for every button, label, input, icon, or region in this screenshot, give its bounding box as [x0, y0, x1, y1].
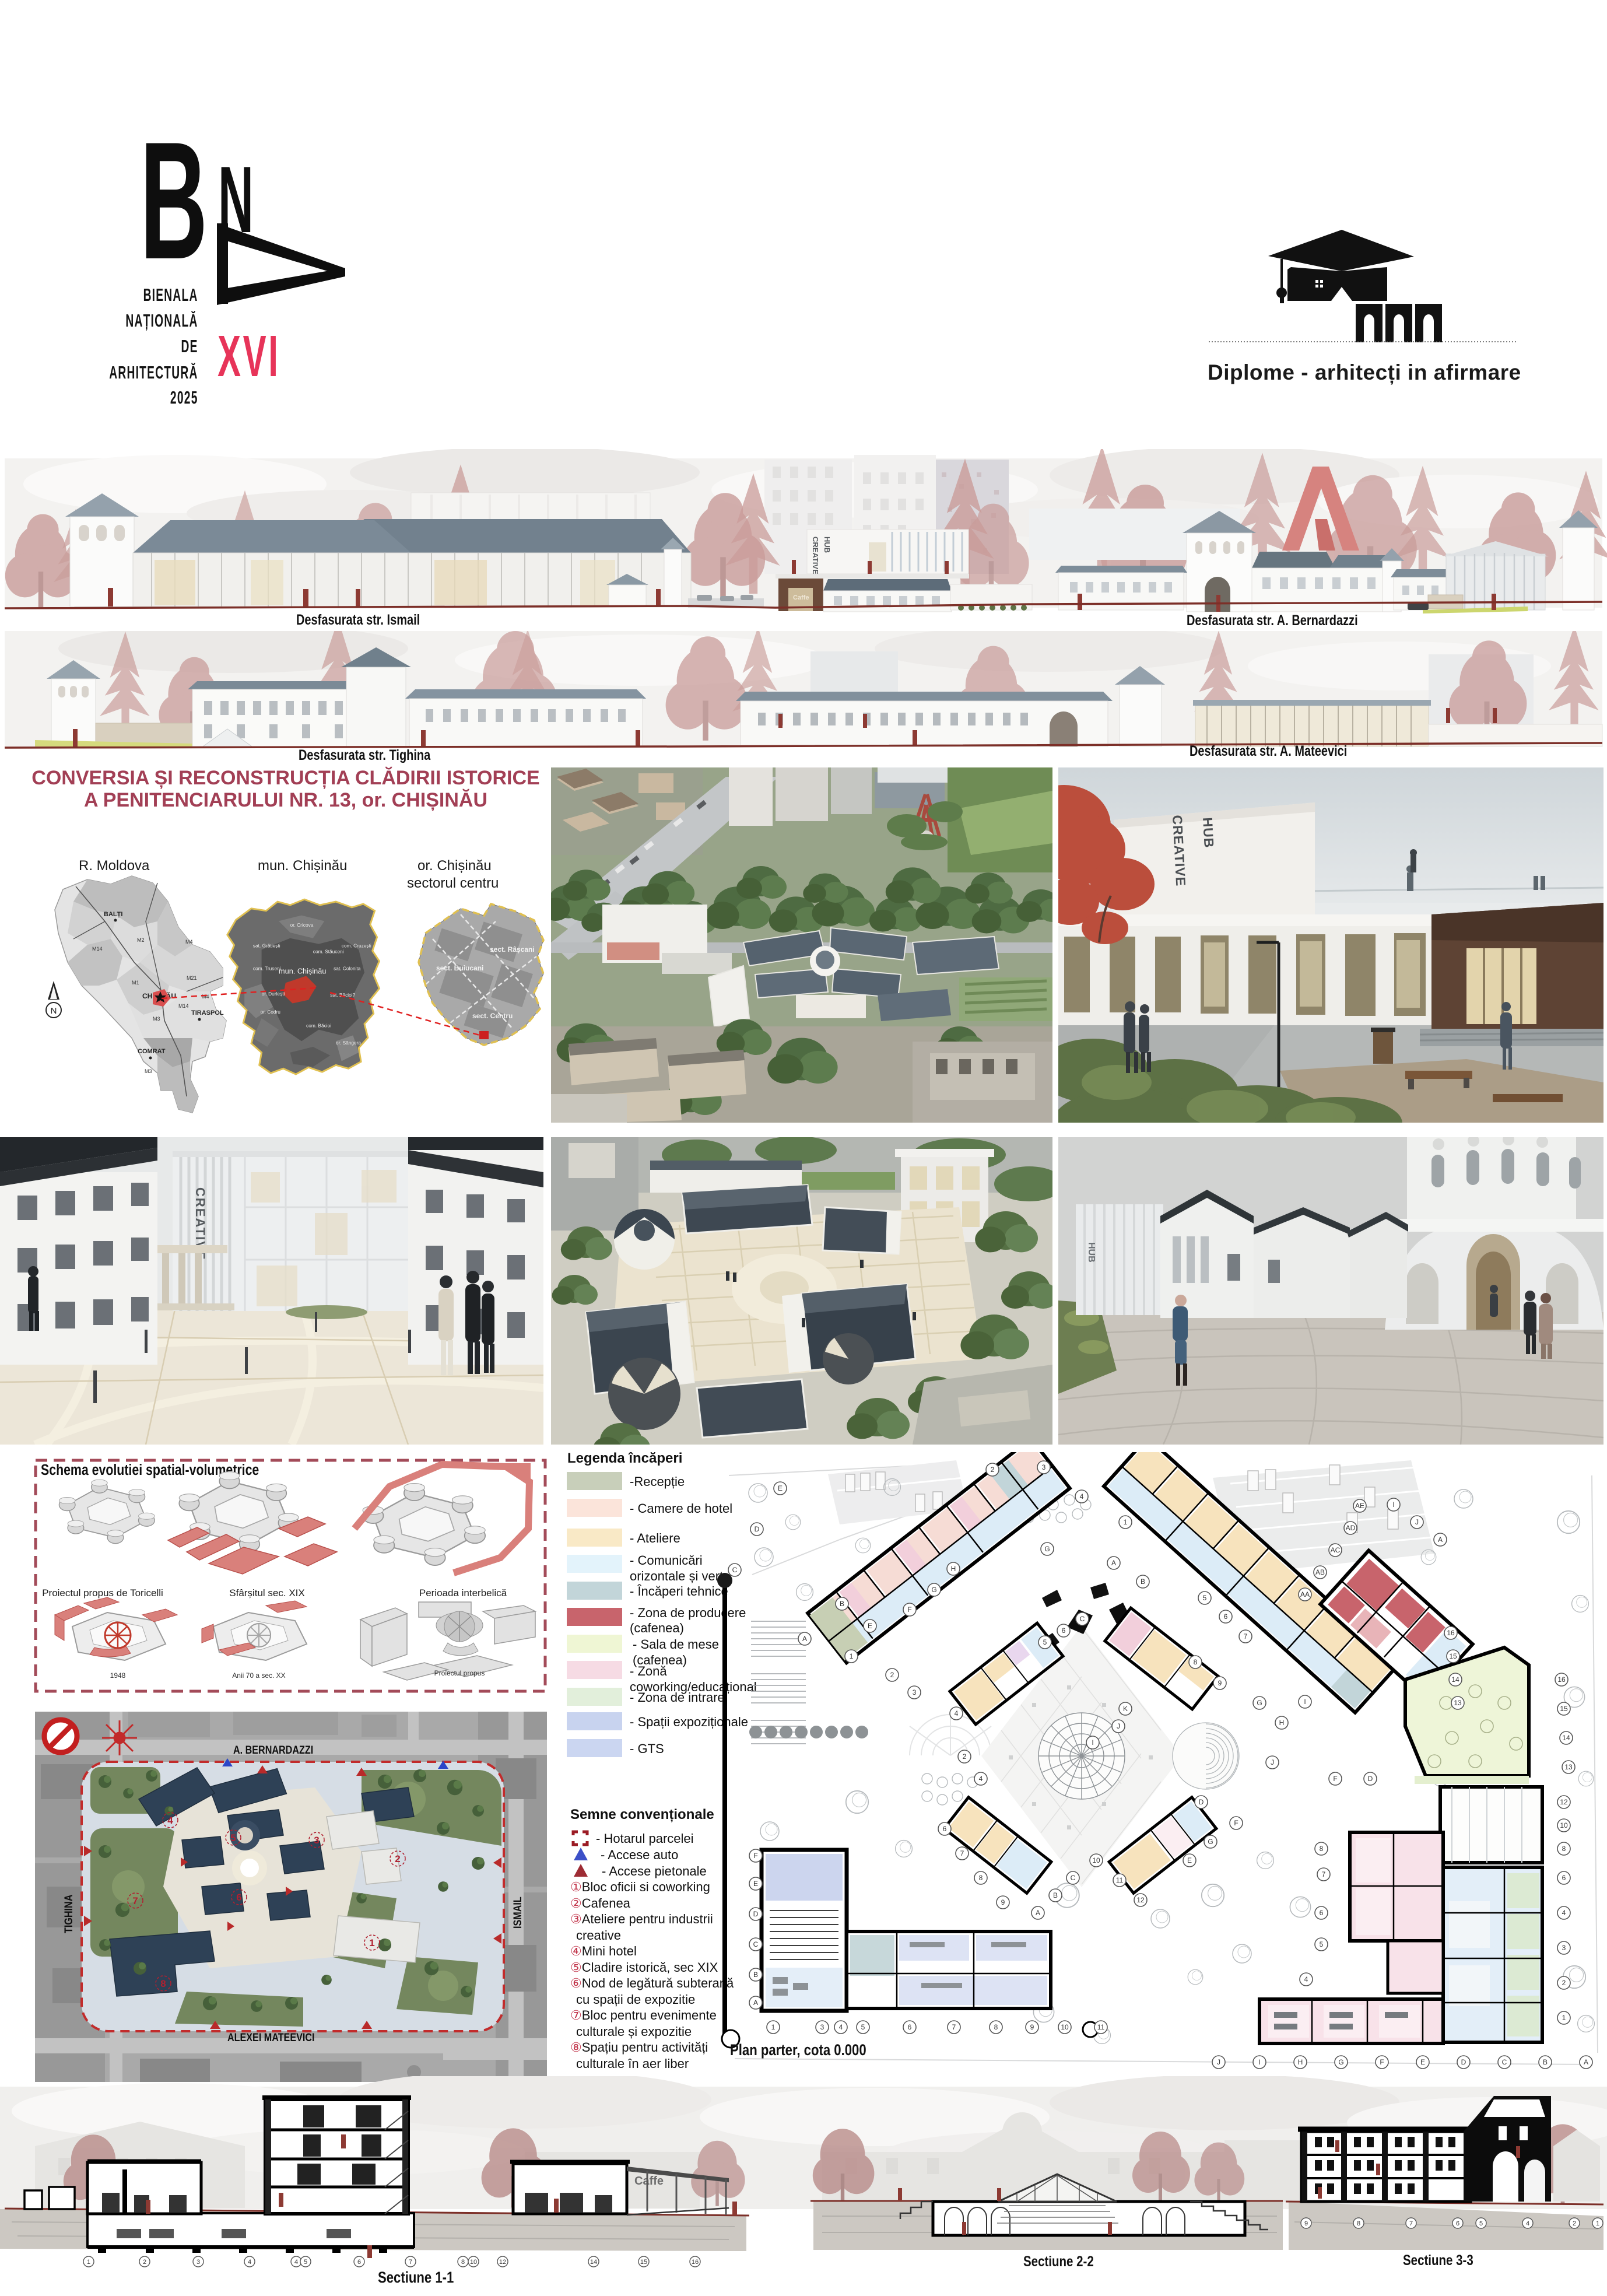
svg-text:H: H — [1298, 2058, 1303, 2066]
svg-text:Sfârșitul sec. XIX: Sfârșitul sec. XIX — [229, 1587, 304, 1599]
svg-text:D: D — [755, 1525, 760, 1533]
svg-text:1: 1 — [87, 2259, 90, 2266]
svg-text:TIRASPOL: TIRASPOL — [191, 1009, 224, 1016]
svg-text:com. Stăuceni: com. Stăuceni — [313, 948, 344, 954]
svg-text:Plan parter, cota 0.000: Plan parter, cota 0.000 — [730, 2042, 866, 2059]
svg-text:4: 4 — [955, 1709, 959, 1717]
svg-text:M3: M3 — [153, 1016, 160, 1022]
svg-text:6: 6 — [236, 1892, 241, 1903]
svg-text:ISMAIL: ISMAIL — [511, 1897, 524, 1929]
svg-text:E: E — [1420, 2058, 1425, 2066]
svg-text:9: 9 — [1030, 2023, 1034, 2031]
svg-text:3: 3 — [314, 1835, 319, 1846]
svg-text:6: 6 — [1224, 1613, 1228, 1621]
svg-text:A: A — [802, 1635, 807, 1643]
svg-text:Desfasurata str. A. Mateevici: Desfasurata str. A. Mateevici — [1190, 743, 1347, 759]
svg-text:4: 4 — [1080, 1492, 1084, 1501]
svg-text:3: 3 — [820, 2023, 824, 2031]
svg-text:J: J — [1117, 1722, 1120, 1730]
svg-text:J: J — [1271, 1758, 1274, 1766]
svg-text:7: 7 — [132, 1895, 138, 1906]
svg-text:15: 15 — [1449, 1652, 1457, 1660]
svg-text:3: 3 — [197, 2259, 200, 2266]
svg-text:sect. Centru: sect. Centru — [472, 1012, 513, 1020]
svg-text:I: I — [1304, 1698, 1306, 1706]
svg-text:D: D — [1461, 2058, 1466, 2066]
svg-text:AC: AC — [1331, 1546, 1341, 1554]
svg-text:1: 1 — [1124, 1518, 1128, 1526]
svg-text:Perioada interbelică: Perioada interbelică — [419, 1587, 507, 1599]
svg-text:sat. Colonita: sat. Colonita — [334, 966, 361, 972]
svg-text:4: 4 — [839, 2023, 843, 2031]
svg-text:BIENALA: BIENALA — [143, 286, 198, 306]
svg-text:11: 11 — [1097, 2023, 1105, 2031]
svg-text:C: C — [1080, 1615, 1085, 1623]
svg-text:5: 5 — [1203, 1594, 1207, 1602]
svg-text:COMRAT: COMRAT — [138, 1048, 166, 1055]
svg-text:D: D — [753, 1910, 759, 1918]
svg-text:M3: M3 — [145, 1068, 152, 1074]
svg-text:C: C — [753, 1940, 759, 1948]
svg-text:NAȚIONALĂ: NAȚIONALĂ — [125, 310, 198, 331]
svg-text:Desfasurata str. A. Bernardazz: Desfasurata str. A. Bernardazzi — [1187, 612, 1358, 629]
svg-text:B: B — [1053, 1891, 1058, 1899]
svg-text:F: F — [753, 1852, 757, 1860]
svg-text:F: F — [1234, 1819, 1238, 1827]
svg-text:HUB: HUB — [1086, 1242, 1096, 1263]
svg-text:com. Truseni: com. Truseni — [253, 966, 281, 972]
svg-text:C: C — [1502, 2058, 1507, 2066]
svg-text:14: 14 — [1451, 1675, 1459, 1684]
svg-text:M4: M4 — [185, 939, 193, 945]
svg-text:6: 6 — [1062, 1627, 1066, 1635]
svg-text:Caffe: Caffe — [793, 594, 809, 601]
svg-text:7: 7 — [1244, 1632, 1248, 1640]
svg-text:ARHITECTURĂ: ARHITECTURĂ — [109, 362, 198, 383]
svg-text:4: 4 — [294, 2259, 298, 2266]
svg-text:3: 3 — [1042, 1463, 1046, 1471]
svg-text:K: K — [1123, 1705, 1128, 1713]
svg-text:8: 8 — [160, 1978, 166, 1989]
svg-text:14: 14 — [590, 2259, 597, 2266]
svg-text:2: 2 — [963, 1752, 967, 1761]
svg-text:D: D — [1368, 1775, 1373, 1783]
svg-text:C: C — [732, 1566, 738, 1574]
svg-text:HUB: HUB — [1200, 817, 1217, 849]
svg-text:XVI: XVI — [217, 324, 280, 389]
svg-text:4: 4 — [167, 1815, 173, 1826]
svg-text:7: 7 — [1322, 1870, 1326, 1878]
svg-text:4: 4 — [248, 2259, 251, 2266]
svg-text:3: 3 — [1562, 1944, 1566, 1952]
svg-text:Desfasurata str. Tighina: Desfasurata str. Tighina — [299, 747, 431, 763]
svg-text:9: 9 — [1304, 2220, 1308, 2227]
svg-text:I: I — [1258, 2058, 1260, 2066]
svg-text:1948: 1948 — [110, 1671, 126, 1680]
svg-text:2: 2 — [143, 2259, 146, 2266]
svg-text:14: 14 — [1562, 1734, 1570, 1742]
svg-text:Proiectul propus: Proiectul propus — [434, 1669, 485, 1677]
svg-text:N: N — [51, 1006, 57, 1016]
svg-text:1: 1 — [1596, 2220, 1599, 2227]
svg-text:sect. Râșcani: sect. Râșcani — [490, 945, 535, 954]
svg-text:16: 16 — [692, 2259, 699, 2266]
svg-text:2: 2 — [1562, 1979, 1566, 1987]
svg-text:5: 5 — [230, 1832, 236, 1843]
svg-text:7: 7 — [960, 1849, 964, 1857]
svg-text:H: H — [1279, 1719, 1285, 1727]
svg-text:BALȚI: BALȚI — [104, 911, 122, 918]
svg-text:4: 4 — [1562, 1909, 1566, 1917]
svg-text:B: B — [1141, 1578, 1145, 1586]
svg-text:mun. Chișinău: mun. Chișinău — [258, 858, 347, 874]
svg-text:A: A — [1111, 1559, 1116, 1567]
svg-text:com. Cruzești: com. Cruzești — [342, 942, 371, 948]
svg-text:2025: 2025 — [170, 388, 198, 408]
svg-text:12: 12 — [1560, 1798, 1568, 1806]
svg-text:4: 4 — [1526, 2220, 1529, 2227]
svg-text:8: 8 — [1320, 1845, 1324, 1853]
svg-text:or. Cricova: or. Cricova — [290, 922, 314, 928]
svg-text:1: 1 — [771, 2023, 776, 2031]
svg-text:1: 1 — [1562, 2014, 1566, 2022]
svg-text:12: 12 — [499, 2259, 506, 2266]
svg-text:M2: M2 — [137, 937, 145, 943]
svg-text:13: 13 — [1454, 1699, 1462, 1707]
svg-text:1: 1 — [850, 1652, 854, 1660]
svg-text:9: 9 — [1001, 1898, 1005, 1906]
svg-text:C: C — [1071, 1874, 1076, 1882]
svg-text:I: I — [1392, 1501, 1394, 1509]
svg-text:5: 5 — [304, 2259, 307, 2266]
svg-text:A. BERNARDAZZI: A. BERNARDAZZI — [233, 1744, 313, 1757]
svg-text:5: 5 — [1043, 1638, 1047, 1646]
svg-text:AE: AE — [1355, 1502, 1364, 1510]
svg-text:E: E — [778, 1484, 783, 1492]
svg-text:F: F — [907, 1606, 911, 1614]
svg-text:HUB: HUB — [823, 537, 831, 553]
svg-text:TIGHINA: TIGHINA — [62, 1894, 75, 1933]
svg-text:5: 5 — [861, 2023, 865, 2031]
svg-text:H: H — [951, 1565, 956, 1573]
svg-text:Caffe: Caffe — [634, 2175, 664, 2188]
svg-text:6: 6 — [1456, 2220, 1459, 2227]
svg-text:7: 7 — [1409, 2220, 1413, 2227]
svg-text:2: 2 — [1573, 2220, 1576, 2227]
svg-text:8: 8 — [461, 2259, 465, 2266]
svg-text:sectorul centru: sectorul centru — [407, 875, 499, 891]
svg-text:A: A — [1438, 1536, 1443, 1544]
svg-text:G: G — [1044, 1545, 1050, 1553]
svg-text:AA: AA — [1300, 1590, 1310, 1599]
svg-text:1: 1 — [369, 1937, 374, 1948]
svg-text:12: 12 — [1136, 1896, 1145, 1904]
svg-text:ALEXEI MATEEVICI: ALEXEI MATEEVICI — [227, 2031, 314, 2044]
svg-text:Anii 70 a sec. XX: Anii 70 a sec. XX — [232, 1671, 285, 1680]
svg-text:G: G — [1257, 1699, 1262, 1707]
svg-text:6: 6 — [1562, 1874, 1566, 1882]
svg-text:or. Săngera: or. Săngera — [336, 1040, 361, 1046]
svg-text:8: 8 — [979, 1874, 983, 1882]
svg-text:J: J — [1217, 2058, 1220, 2066]
svg-text:6: 6 — [943, 1825, 947, 1833]
svg-text:8: 8 — [1194, 1658, 1198, 1666]
svg-text:J: J — [1415, 1518, 1419, 1526]
svg-text:2: 2 — [395, 1853, 400, 1864]
svg-text:8: 8 — [994, 2023, 998, 2031]
svg-text:6: 6 — [357, 2259, 361, 2266]
svg-text:E: E — [868, 1622, 872, 1630]
svg-text:DE: DE — [181, 337, 198, 357]
svg-text:8: 8 — [1562, 1845, 1566, 1853]
svg-text:G: G — [931, 1586, 936, 1594]
svg-text:10: 10 — [1560, 1821, 1568, 1829]
svg-text:10: 10 — [470, 2259, 477, 2266]
svg-text:B: B — [840, 1600, 844, 1608]
svg-text:4: 4 — [979, 1775, 983, 1783]
svg-text:A: A — [1584, 2058, 1588, 2066]
svg-text:A: A — [1036, 1909, 1040, 1917]
svg-text:sect. Buiucani: sect. Buiucani — [436, 964, 483, 972]
svg-text:AB: AB — [1315, 1568, 1325, 1576]
svg-text:Sectiune 2-2: Sectiune 2-2 — [1023, 2253, 1094, 2269]
svg-text:7: 7 — [409, 2259, 412, 2266]
svg-text:4: 4 — [1304, 1975, 1308, 1983]
svg-text:D: D — [1199, 1798, 1204, 1806]
svg-text:2: 2 — [890, 1671, 894, 1679]
svg-text:M14: M14 — [178, 1003, 189, 1009]
svg-text:10: 10 — [1092, 1856, 1100, 1864]
svg-text:5: 5 — [1320, 1940, 1324, 1948]
svg-text:E: E — [1187, 1856, 1192, 1864]
svg-text:B: B — [753, 1971, 758, 1979]
svg-text:2: 2 — [991, 1466, 995, 1474]
svg-text:Diplome - arhitecți in afirmar: Diplome - arhitecți in afirmare — [1208, 360, 1521, 385]
svg-text:6: 6 — [908, 2023, 912, 2031]
svg-text:G: G — [1208, 1838, 1213, 1846]
svg-text:E: E — [753, 1880, 758, 1888]
svg-text:Sectiune 1-1: Sectiune 1-1 — [378, 2269, 454, 2287]
svg-text:15: 15 — [1560, 1705, 1568, 1713]
svg-text:Desfasurata str. Ismail: Desfasurata str. Ismail — [296, 612, 420, 628]
svg-text:8: 8 — [1357, 2220, 1360, 2227]
svg-text:B: B — [1543, 2058, 1548, 2066]
svg-text:M1: M1 — [132, 980, 139, 986]
svg-text:B: B — [140, 122, 208, 295]
svg-text:sat. Grătiești: sat. Grătiești — [253, 942, 280, 948]
svg-text:M4: M4 — [202, 994, 209, 1000]
svg-text:M21: M21 — [187, 975, 197, 981]
svg-text:com. Băcioi: com. Băcioi — [306, 1023, 331, 1029]
svg-text:15: 15 — [640, 2259, 647, 2266]
svg-text:A: A — [753, 1999, 758, 2007]
svg-text:G: G — [1338, 2058, 1343, 2066]
svg-text:I: I — [1092, 1738, 1093, 1747]
svg-text:11: 11 — [1116, 1876, 1124, 1884]
svg-text:or. Chișinău: or. Chișinău — [417, 858, 492, 874]
svg-text:or. Codru: or. Codru — [261, 1009, 281, 1015]
svg-text:16: 16 — [1557, 1675, 1566, 1684]
svg-text:9: 9 — [1218, 1679, 1222, 1687]
svg-text:10: 10 — [1061, 2023, 1069, 2031]
svg-text:AD: AD — [1346, 1524, 1356, 1532]
svg-text:3: 3 — [913, 1688, 917, 1696]
svg-text:Sectiune 3-3: Sectiune 3-3 — [1403, 2252, 1473, 2268]
svg-text:5: 5 — [1479, 2220, 1483, 2227]
svg-text:M14: M14 — [92, 946, 103, 952]
svg-text:7: 7 — [952, 2023, 956, 2031]
svg-text:Proiectul propus de Toricelli: Proiectul propus de Toricelli — [42, 1587, 163, 1599]
svg-text:F: F — [1333, 1775, 1337, 1783]
svg-text:mun. Chișinău: mun. Chișinău — [279, 967, 326, 976]
svg-text:6: 6 — [1320, 1909, 1324, 1917]
svg-text:16: 16 — [1447, 1629, 1455, 1637]
svg-text:F: F — [1380, 2058, 1384, 2066]
svg-text:CREATIVE: CREATIVE — [811, 537, 820, 574]
svg-text:R. Moldova: R. Moldova — [79, 858, 150, 874]
svg-text:13: 13 — [1564, 1763, 1573, 1771]
